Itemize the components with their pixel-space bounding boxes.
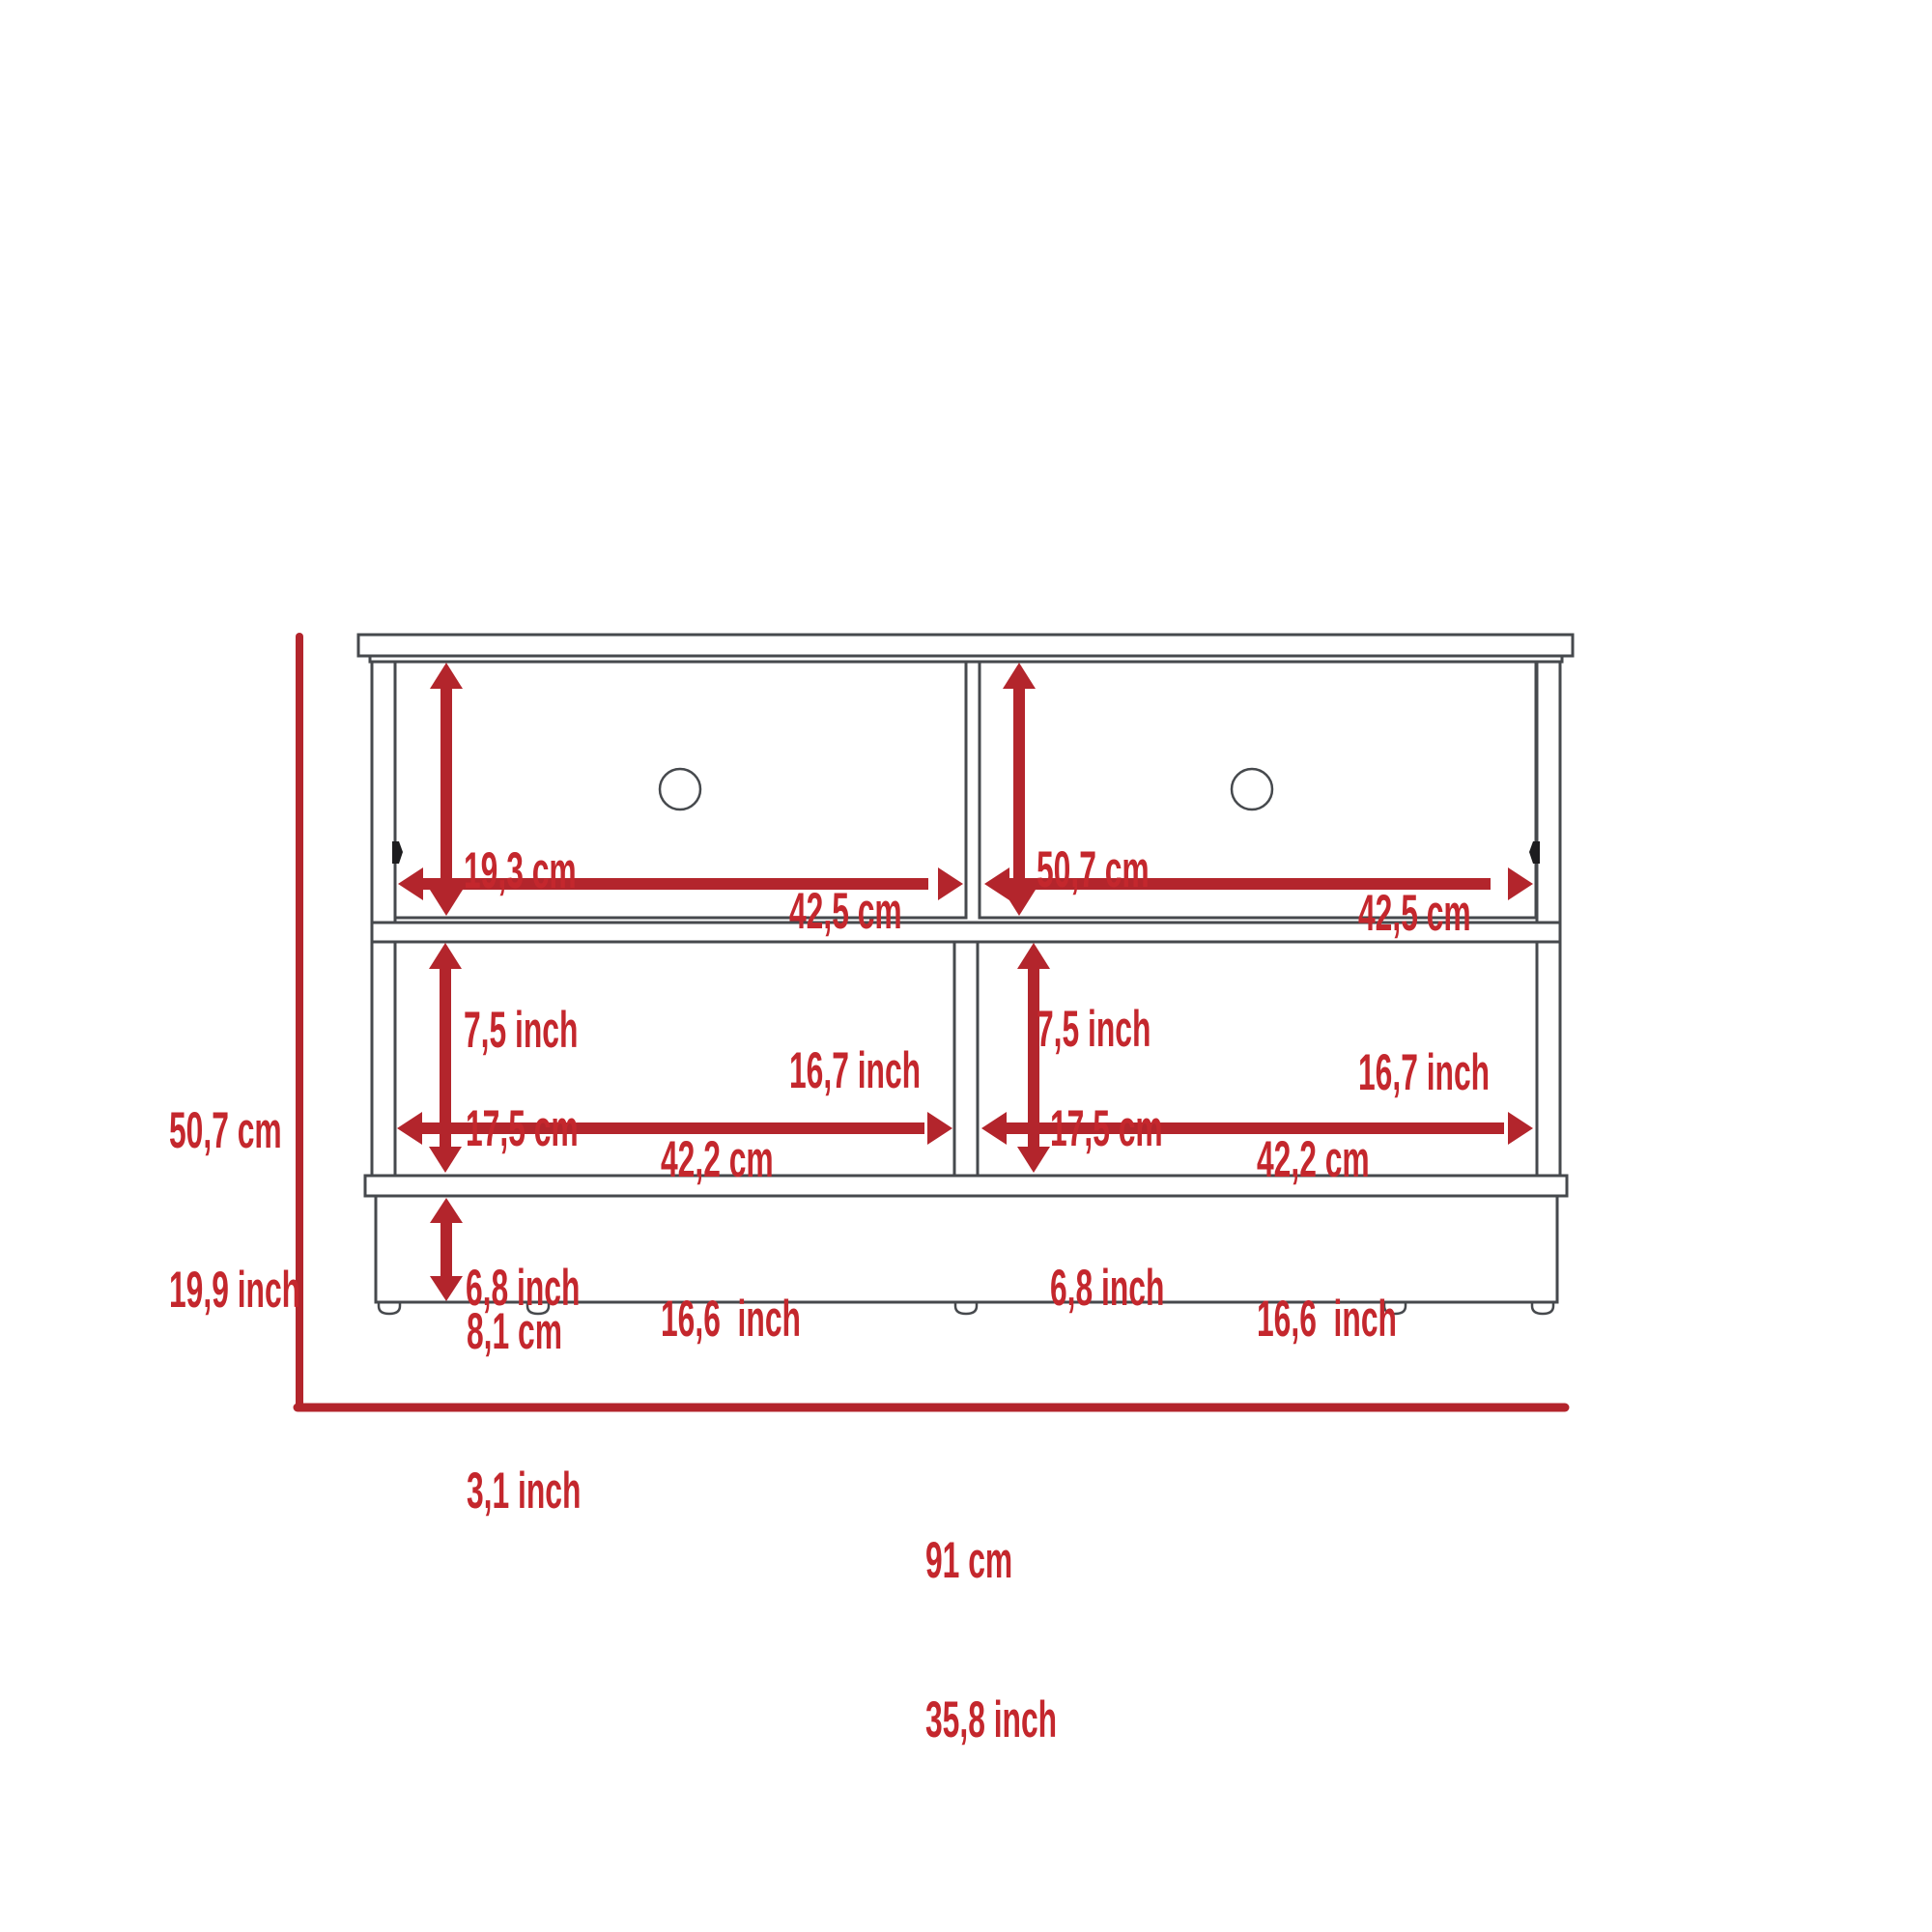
dim-cm-value: 17,5 cm [466, 1102, 580, 1155]
dim-inch-value: 19,9 inch [169, 1264, 300, 1317]
overall-width-label: 91 cm 35,8 inch [925, 1428, 1057, 1853]
base-height-label: 8,1 cm 3,1 inch [467, 1199, 581, 1624]
dim-cm-value: 91 cm [925, 1534, 1057, 1587]
foot-3 [955, 1302, 977, 1314]
dim-inch-value: 35,8 inch [925, 1693, 1057, 1747]
dim-cm-value: 42,5 cm [1358, 887, 1490, 940]
foot-1 [379, 1302, 400, 1314]
foot-5 [1532, 1302, 1553, 1314]
dim-cm-value: 17,5 cm [1050, 1102, 1164, 1155]
shelf-right-height-label: 17,5 cm 6,8 inch [1050, 996, 1164, 1421]
dimension-diagram: 50,7 cm 19,9 inch 91 cm 35,8 inch 19,3 c… [0, 0, 1932, 1932]
shelf-left-width-label: 42,2 cm 16,6 inch [661, 1027, 801, 1452]
overall-height-label: 50,7 cm 19,9 inch [169, 998, 300, 1423]
drawer-left-width-label: 42,5 cm 16,7 inch [789, 779, 921, 1204]
dim-cm-value: 19,3 cm [464, 844, 578, 897]
dim-inch-value: 6,8 inch [1050, 1262, 1164, 1315]
dim-inch-value: 16,7 inch [789, 1044, 921, 1097]
dim-inch-value: 3,1 inch [467, 1464, 581, 1518]
dim-cm-value: 50,7 cm [169, 1104, 300, 1157]
dim-cm-value: 8,1 cm [467, 1305, 581, 1358]
shelf-center-divider [954, 942, 978, 1176]
side-panel-right [1537, 662, 1560, 1176]
side-panel-left [372, 662, 395, 1176]
dim-cm-value: 50,7 cm [1037, 843, 1151, 896]
shelf-right-width-label: 42,2 cm 16,6 inch [1257, 1027, 1397, 1452]
dim-inch-value: 16,6 inch [1257, 1293, 1397, 1346]
shelf-left-height-arrow [429, 943, 462, 1173]
dim-cm-value: 42,2 cm [1257, 1133, 1397, 1186]
dim-inch-value: 16,6 inch [661, 1293, 801, 1346]
dim-cm-value: 42,5 cm [789, 885, 921, 938]
dim-cm-value: 42,2 cm [661, 1133, 801, 1186]
top-board [358, 635, 1573, 656]
